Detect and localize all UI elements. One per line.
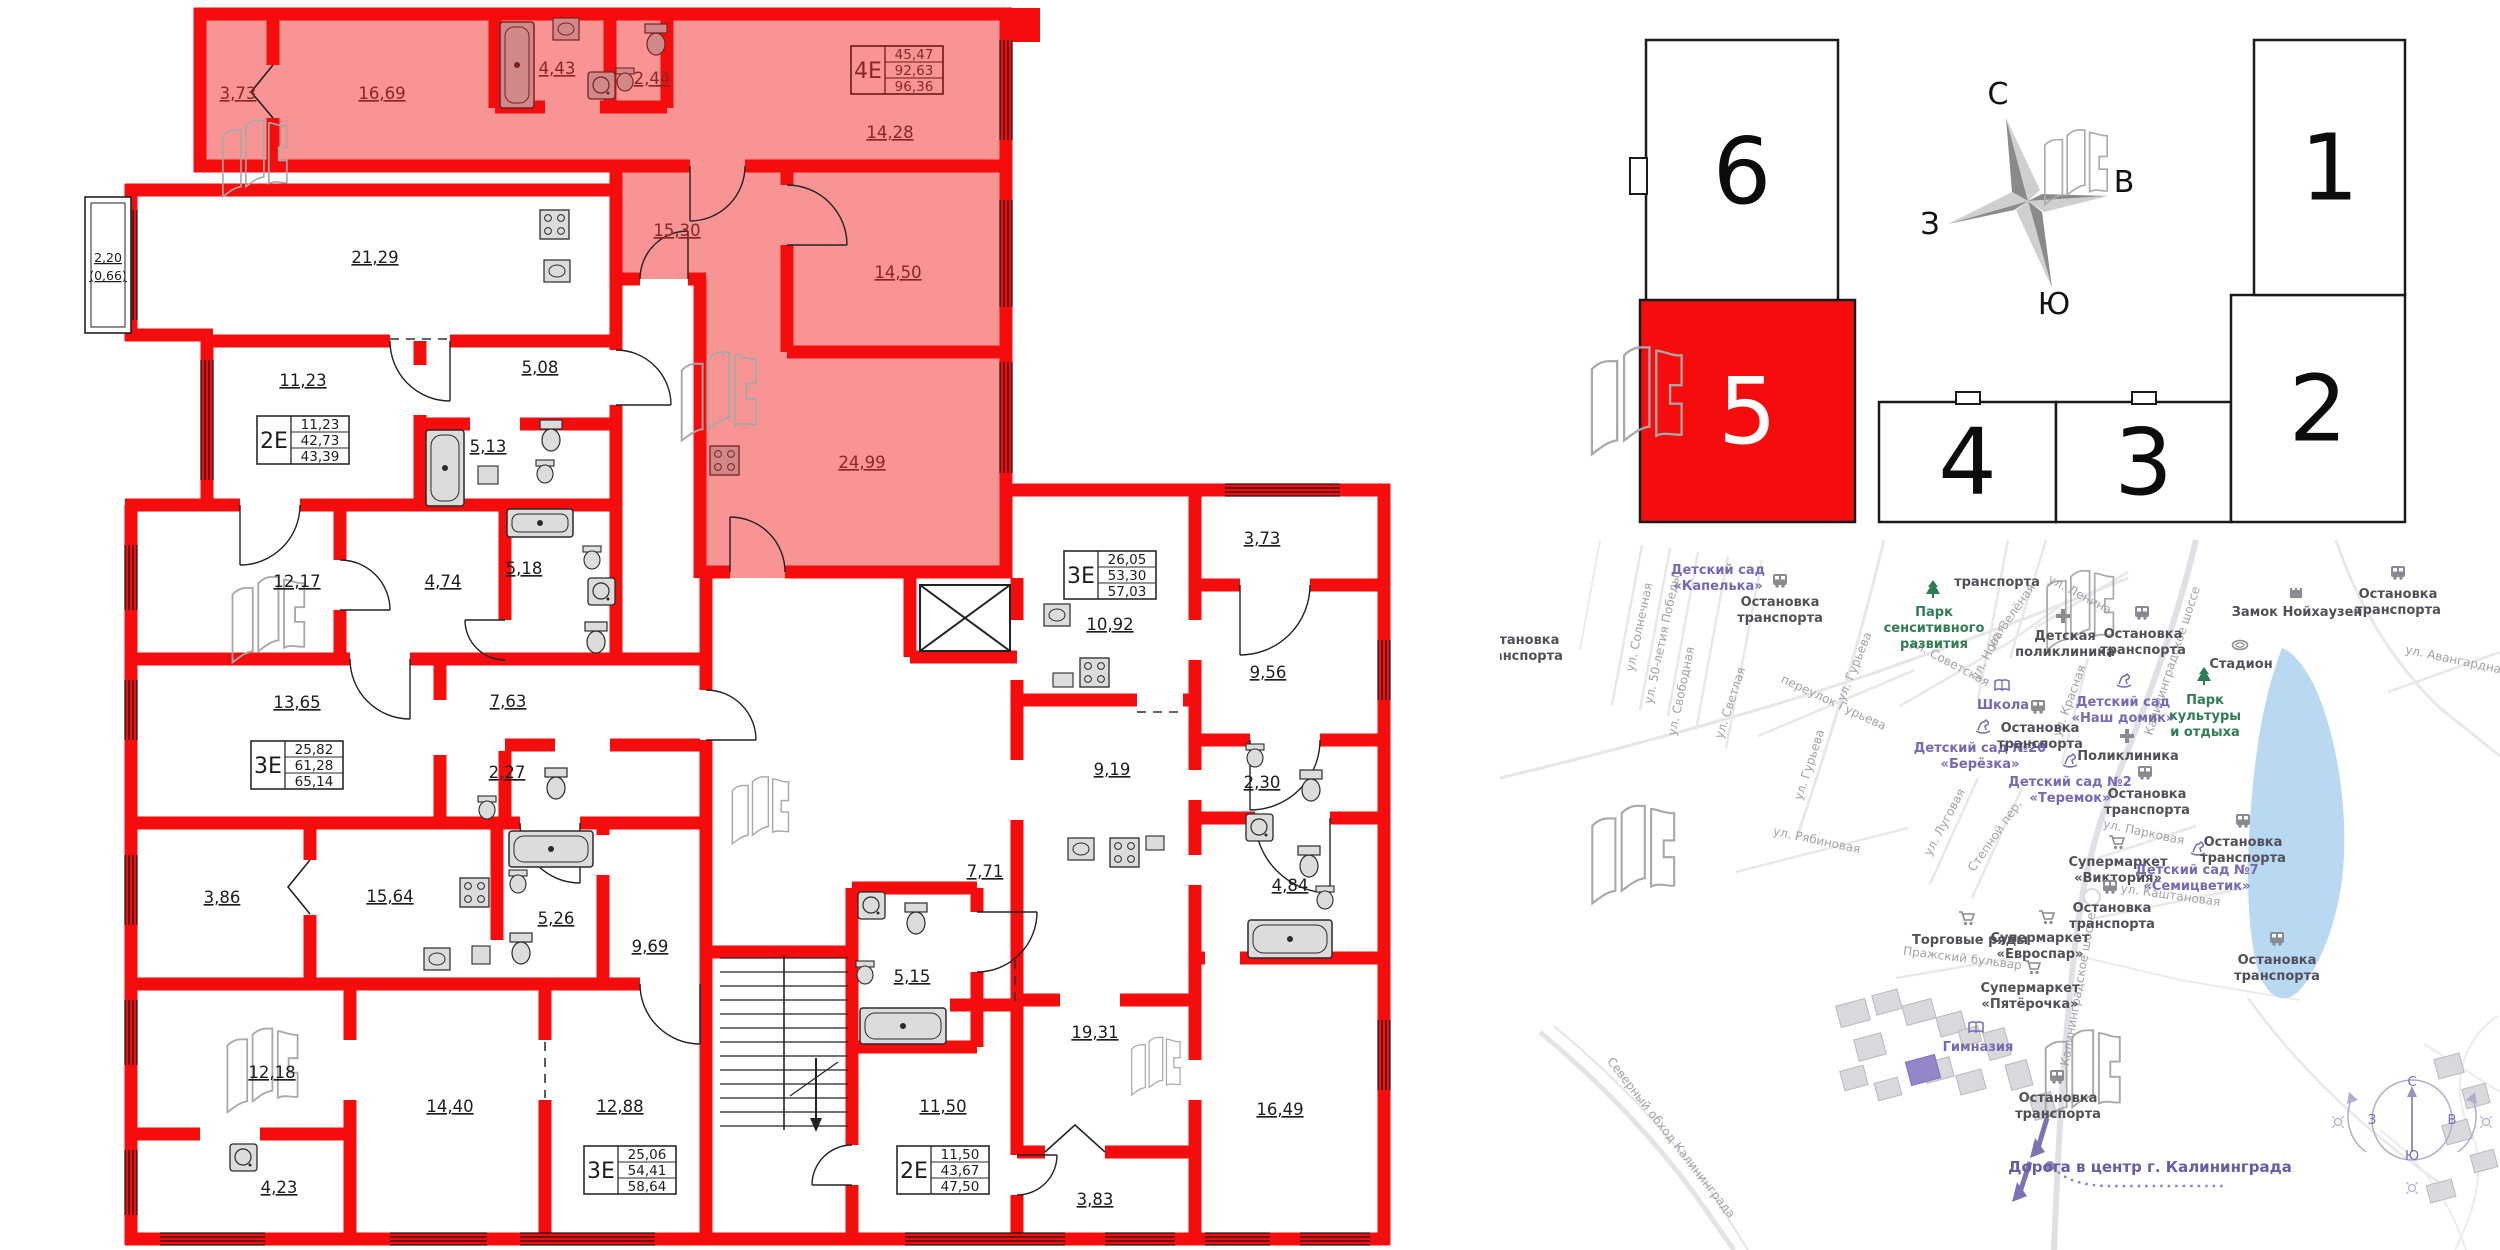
poi-label: транспорта [2100, 643, 2186, 658]
poi-label: сенситивного [1884, 621, 1985, 636]
room-area-label: 11,23 [279, 371, 326, 390]
kitchen-sink [553, 18, 579, 40]
washing-machine [1246, 814, 1273, 841]
stove [1110, 838, 1139, 867]
staircase [720, 955, 848, 1132]
room-area-label: 2,27 [489, 763, 526, 782]
poi-label: «Пятёрочка» [1981, 997, 2078, 1012]
developer-watermark [732, 777, 788, 844]
apartment-area-value: 11,23 [301, 417, 340, 433]
poi-label: транспорта [2200, 851, 2286, 866]
apartment-area-value: 42,73 [301, 433, 340, 449]
poi-label: Остановка [2073, 901, 2152, 916]
room-area-label: 19,31 [1071, 1023, 1118, 1042]
room-area-label: 5,15 [894, 967, 931, 986]
poi-label: Остановка [1500, 633, 1559, 648]
poi-label: транспорта [1500, 649, 1563, 664]
apartment-area-value: 57,03 [1108, 584, 1147, 600]
apartment-area-value: 25,82 [295, 742, 334, 758]
apartment-area-value: 26,05 [1108, 552, 1147, 568]
room-area-label: 15,64 [366, 887, 413, 906]
room-area-label: 2,44 [634, 69, 671, 88]
room-area-label: 4,43 [539, 59, 576, 78]
toilet [1298, 846, 1320, 855]
counter [472, 946, 490, 964]
poi-label: транспорта [2355, 603, 2441, 618]
apartment-summary-table: 3Е26,0553,3057,03 [1064, 551, 1156, 600]
building-block-6[interactable]: 6 [1646, 40, 1838, 302]
poi-label: Стадион [2209, 657, 2272, 672]
apartment-area-value: 53,30 [1108, 568, 1147, 584]
balcony-area: 2,20 [94, 250, 122, 265]
poi-label: транспорта [1997, 737, 2083, 752]
room-area-label: 15,30 [653, 221, 700, 240]
apartment-summary-table: 2Е11,2342,7343,39 [257, 416, 349, 465]
room-area-label: 4,84 [1272, 876, 1309, 895]
apartment-area-value: 47,50 [941, 1179, 980, 1195]
apartment-type: 4Е [854, 59, 882, 84]
map-poi: Детский сад«Капелька» [1671, 563, 1765, 594]
counter [1146, 836, 1164, 850]
room-area-label: 7,71 [967, 862, 1004, 881]
room-area-label: 24,99 [838, 453, 885, 472]
apartment-type: 3Е [1067, 564, 1095, 589]
room-area-label: 4,74 [425, 572, 462, 591]
apartment-area-value: 92,63 [895, 63, 934, 79]
room-area-label: 14,50 [874, 263, 921, 282]
map-poi: транспорта [1954, 575, 2040, 590]
toilet [545, 768, 567, 777]
balcony: 2,20(0,66) [85, 197, 131, 333]
apartment-area-value: 43,39 [301, 449, 340, 465]
compass-north: С [1988, 77, 2009, 112]
washing-machine [858, 892, 885, 919]
apartment-area-value: 45,47 [895, 47, 934, 63]
poi-label: Остановка [2104, 627, 2183, 642]
poi-label: «Капелька» [1673, 579, 1762, 594]
washing-machine [588, 578, 615, 605]
counter [1053, 673, 1073, 687]
apartment-area-value: 65,14 [295, 774, 334, 790]
kitchen-sink [1044, 604, 1070, 626]
toilet [585, 622, 607, 631]
toilet [540, 420, 562, 429]
block-number: 3 [2114, 409, 2173, 516]
toilet [1300, 770, 1322, 779]
poi-label: Детская [2034, 629, 2096, 644]
poi-label: культуры [2169, 709, 2241, 724]
compass-west: З [1920, 207, 1939, 242]
poi-label: Гимназия [1943, 1040, 2014, 1055]
building-block-3[interactable]: 3 [2056, 402, 2231, 522]
building-block-1[interactable]: 1 [2254, 40, 2405, 295]
poi-label: Поликлиника [2077, 749, 2179, 764]
toilet [905, 903, 927, 912]
apartment-area-value: 54,41 [628, 1163, 667, 1179]
poi-label: транспорта [2015, 1107, 2101, 1122]
room-area-label: 13,65 [273, 693, 320, 712]
poi-label: Замок Нойхаузен [2232, 605, 2363, 620]
poi-label: «Берёзка» [1941, 757, 2020, 772]
room-area-label: 11,50 [919, 1097, 966, 1116]
poi-label: транспорта [2069, 917, 2155, 932]
apartment-type: 2Е [900, 1159, 928, 1184]
room-area-label: 3,73 [1244, 529, 1281, 548]
stove [460, 878, 489, 907]
compass-east: В [2114, 165, 2135, 200]
apartment-area-value: 58,64 [628, 1179, 667, 1195]
block-number: 2 [2289, 356, 2348, 463]
stove [710, 446, 739, 475]
washing-machine [588, 72, 615, 99]
map-compass-west: З [2368, 1113, 2376, 1128]
washing-machine [230, 1144, 257, 1171]
poi-label: транспорта [2104, 803, 2190, 818]
poi-label: «Наш домик» [2072, 711, 2175, 726]
poi-label: Остановка [2238, 953, 2317, 968]
apartment-type: 2Е [260, 429, 288, 454]
room-area-label: 5,08 [522, 358, 559, 377]
apartment-summary-table: 3Е25,0654,4158,64 [584, 1146, 676, 1195]
room-area-label: 12,17 [273, 572, 320, 591]
poi-label: транспорта [2234, 969, 2320, 984]
building-block-4[interactable]: 4 [1879, 402, 2056, 522]
poi-label: транспорта [1954, 575, 2040, 590]
room-area-label: 4,23 [261, 1178, 298, 1197]
room-area-label: 2,30 [1244, 773, 1281, 792]
room-area-label: 12,88 [596, 1097, 643, 1116]
poi-label: транспорта [1737, 611, 1823, 626]
block-number: 6 [1713, 118, 1772, 225]
developer-watermark [2045, 130, 2107, 204]
apartment-summary-table: 2Е11,5043,6747,50 [897, 1146, 989, 1195]
room-area-label: 5,26 [538, 909, 575, 928]
apartment-area-value: 25,06 [628, 1147, 667, 1163]
room-area-label: 16,49 [1256, 1100, 1303, 1119]
location-map: ул. Солнечнаяул. 50-летия Победыул. Своб… [1500, 540, 2500, 1250]
map-compass-south: Ю [2405, 1149, 2419, 1164]
room-area-label: 10,92 [1086, 615, 1133, 634]
toilet [645, 24, 667, 33]
developer-watermark [1132, 1037, 1180, 1095]
compass-south: Ю [2038, 287, 2070, 322]
floor-plan: 2,20(0,66)3,7316,694,432,4414,2815,3014,… [0, 0, 1500, 1250]
counter [478, 466, 498, 484]
kitchen-sink [544, 260, 570, 282]
room-area-label: 9,69 [632, 937, 669, 956]
map-compass-north: С [2407, 1075, 2416, 1090]
room-area-label: 16,69 [358, 84, 405, 103]
block-number: 4 [1938, 409, 1997, 516]
elevator-shaft [920, 585, 1010, 651]
poi-label: развития [1900, 637, 1968, 652]
room-area-label: 3,86 [204, 888, 241, 907]
castle-icon [2290, 588, 2302, 598]
room-area-label: 7,63 [490, 692, 527, 711]
poi-label: Школа [1977, 698, 2029, 713]
poi-label: Остановка [2204, 835, 2283, 850]
poi-label: «Семицветик» [2143, 879, 2250, 894]
room-area-label: 5,13 [470, 437, 507, 456]
apartment-area-value: 11,50 [941, 1147, 980, 1163]
room-area-label: 9,19 [1094, 760, 1131, 779]
poi-label: «Евроспар» [1997, 947, 2084, 962]
kitchen-sink [424, 948, 450, 970]
poi-label: Парк [2186, 693, 2224, 708]
kitchen-sink [1068, 838, 1094, 860]
apartment-area-value: 61,28 [295, 758, 334, 774]
room-area-label: 14,40 [426, 1097, 473, 1116]
room-area-label: 12,18 [248, 1063, 295, 1082]
poi-label: Детский сад [2076, 695, 2170, 710]
room-area-label: 14,28 [866, 123, 913, 142]
poi-label: Остановка [1741, 595, 1820, 610]
poi-label: Остановка [2001, 721, 2080, 736]
toilet [510, 933, 532, 942]
room-area-label: 3,73 [220, 84, 257, 103]
building-block-2[interactable]: 2 [2231, 295, 2405, 522]
poi-label: Парк [1915, 605, 1953, 620]
poi-label: Остановка [2019, 1091, 2098, 1106]
map-poi: Остановкатранспорта [1500, 633, 1563, 664]
room-area-label: 3,83 [1077, 1190, 1114, 1209]
poi-label: Торговые ряды [1912, 933, 2028, 948]
poi-label: Остановка [2359, 587, 2438, 602]
balcony-area-reduced: (0,66) [89, 268, 127, 283]
route-note: Дорога в центр г. Калининграда [2008, 1158, 2292, 1176]
block-number: 5 [1718, 358, 1777, 465]
room-area-label: 9,56 [1250, 663, 1287, 682]
room-area-label: 5,18 [506, 559, 543, 578]
apartment-type: 3Е [254, 754, 282, 779]
apartment-summary-table: 3Е25,8261,2865,14 [251, 741, 343, 790]
apartment-type: 3Е [587, 1159, 615, 1184]
poi-label: Супермаркет [1981, 981, 2080, 996]
stove [540, 210, 569, 239]
compass-rose: СВЮЗ [1920, 77, 2134, 322]
building-position-diagram: 654321СВЮЗ [1580, 0, 2500, 540]
poi-label: Детский сад [1671, 563, 1765, 578]
map-compass-east: В [2448, 1113, 2457, 1128]
apartment-area-value: 96,36 [895, 79, 934, 95]
apartment-area-value: 43,67 [941, 1163, 980, 1179]
building-block-5[interactable]: 5 [1640, 300, 1855, 522]
block-number: 1 [2300, 115, 2359, 222]
poi-label: и отдыха [2170, 725, 2240, 740]
poi-label: Остановка [2108, 787, 2187, 802]
room-area-label: 21,29 [351, 248, 398, 267]
stove [1080, 658, 1109, 687]
poi-label: «Теремок» [2030, 791, 2111, 806]
